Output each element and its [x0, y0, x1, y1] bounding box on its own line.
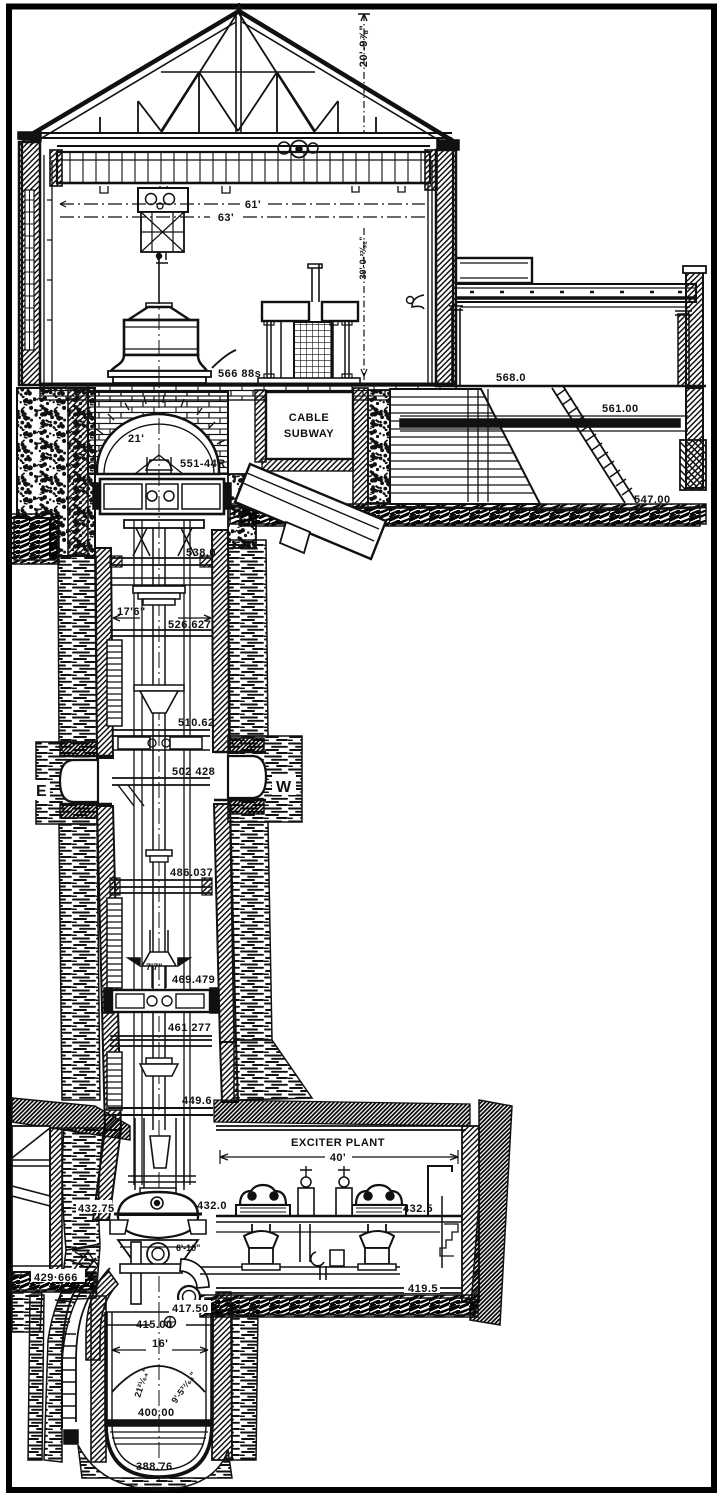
- svg-text:469.479: 469.479: [172, 974, 215, 986]
- svg-text:538.0: 538.0: [186, 547, 216, 559]
- svg-text:486.037: 486.037: [170, 867, 213, 879]
- svg-text:EXCITER PLANT: EXCITER PLANT: [291, 1137, 385, 1149]
- svg-text:21': 21': [128, 433, 144, 445]
- svg-text:526.627: 526.627: [168, 619, 211, 631]
- svg-text:429·666: 429·666: [34, 1272, 78, 1284]
- svg-text:17'6": 17'6": [117, 606, 146, 618]
- svg-text:SUBWAY: SUBWAY: [284, 428, 334, 440]
- svg-text:432.75: 432.75: [78, 1203, 115, 1215]
- svg-text:40': 40': [330, 1152, 346, 1164]
- svg-text:432.5: 432.5: [403, 1203, 433, 1215]
- svg-text:6'-10": 6'-10": [176, 1243, 200, 1253]
- svg-text:388.76: 388.76: [136, 1461, 173, 1473]
- svg-text:63': 63': [218, 212, 234, 224]
- svg-text:20'-9⅞": 20'-9⅞": [358, 25, 370, 68]
- svg-text:415.00: 415.00: [136, 1319, 173, 1331]
- svg-text:547.00: 547.00: [634, 494, 671, 506]
- svg-text:432.0: 432.0: [197, 1200, 227, 1212]
- svg-text:502 428: 502 428: [172, 766, 215, 778]
- svg-text:400.00: 400.00: [138, 1407, 175, 1419]
- svg-text:461 277: 461 277: [168, 1022, 211, 1034]
- svg-text:39'-0-²³⁄₃₂": 39'-0-²³⁄₃₂": [358, 236, 368, 279]
- svg-text:16': 16': [152, 1338, 168, 1350]
- svg-text:566 88s: 566 88s: [218, 368, 261, 380]
- svg-text:E: E: [36, 783, 47, 800]
- svg-text:568.0: 568.0: [496, 372, 526, 384]
- svg-text:449.6: 449.6: [182, 1095, 212, 1107]
- svg-text:510.62: 510.62: [178, 717, 215, 729]
- svg-text:CABLE: CABLE: [289, 412, 329, 424]
- svg-text:417.50: 417.50: [172, 1303, 209, 1315]
- svg-text:419.5: 419.5: [408, 1283, 438, 1295]
- svg-text:61': 61': [245, 199, 261, 211]
- svg-text:561.00: 561.00: [602, 403, 639, 415]
- svg-text:W: W: [276, 779, 292, 796]
- svg-text:551-44R: 551-44R: [180, 458, 226, 470]
- svg-text:7'7": 7'7": [146, 962, 162, 972]
